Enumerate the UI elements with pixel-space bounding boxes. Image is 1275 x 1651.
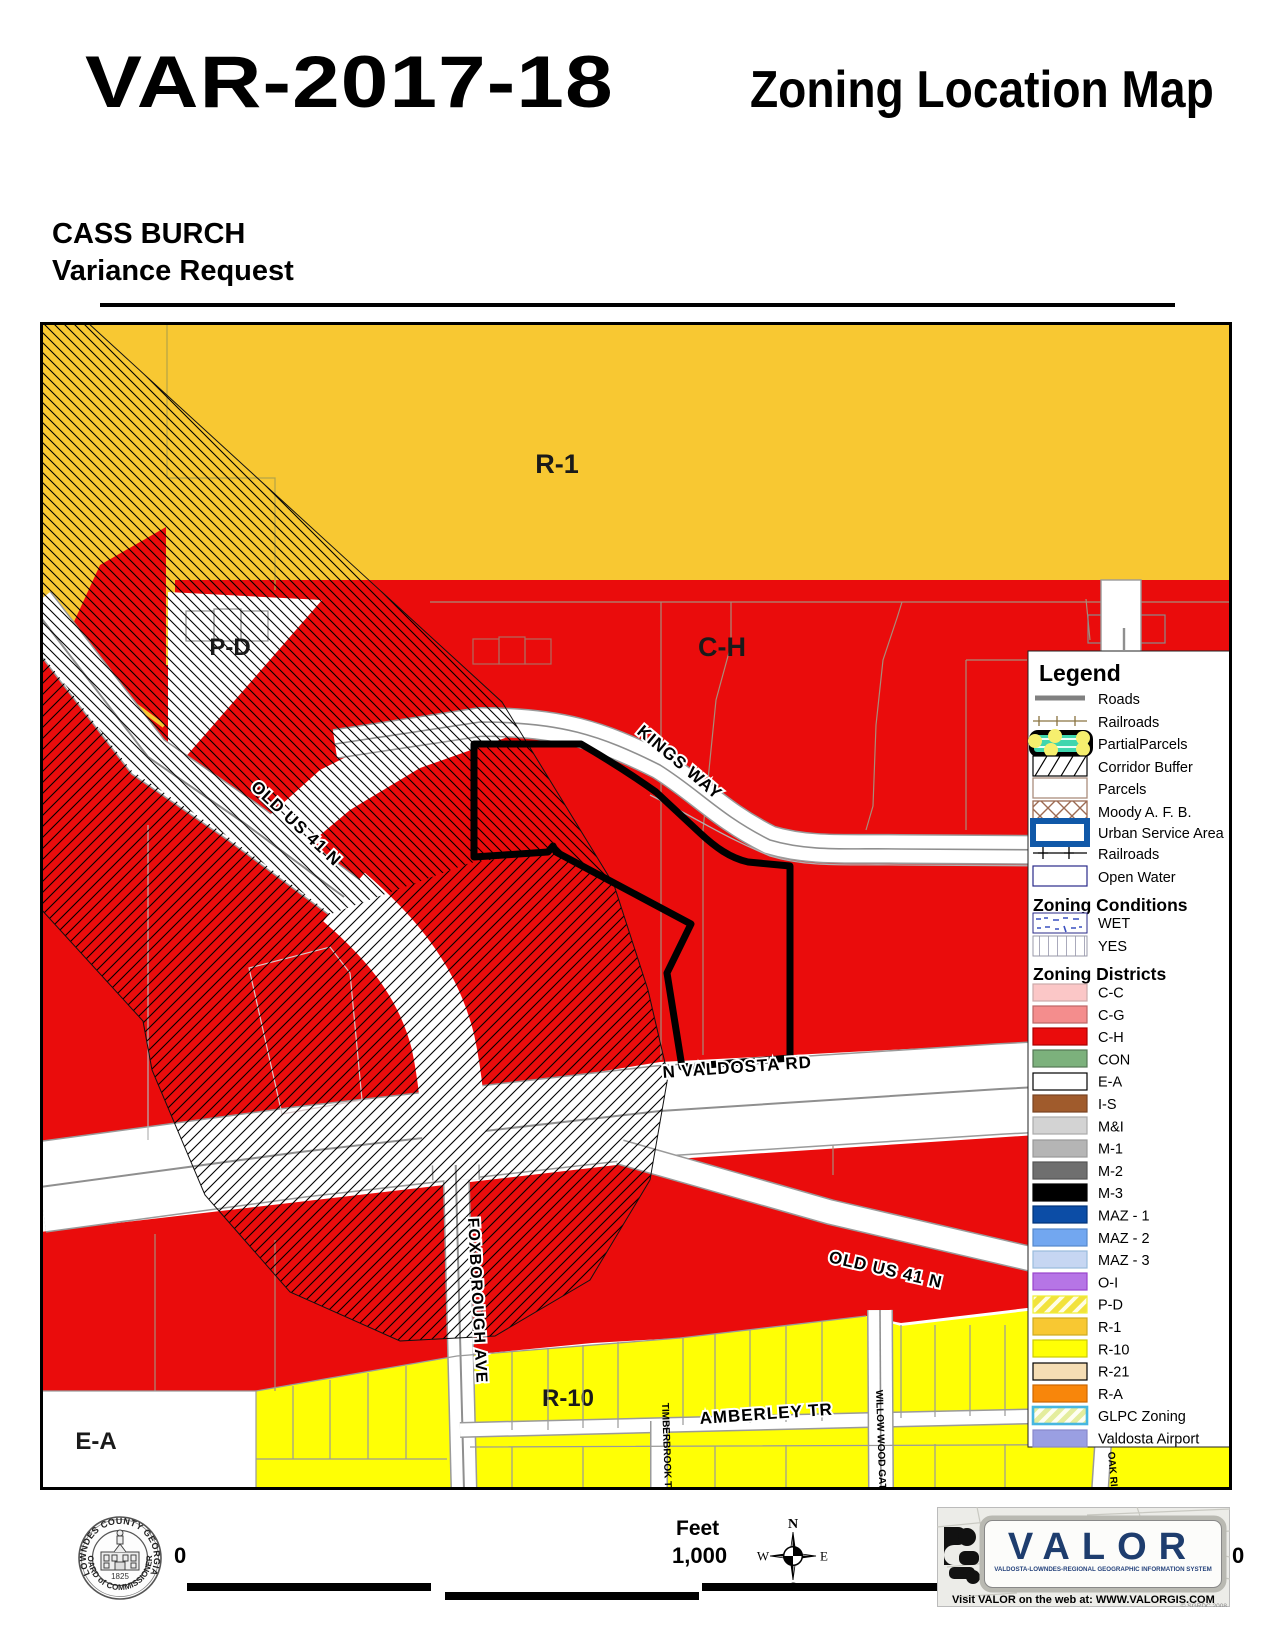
svg-text:S: S bbox=[789, 1579, 796, 1594]
svg-text:N: N bbox=[788, 1517, 798, 1532]
svg-text:P-D: P-D bbox=[209, 634, 250, 661]
svg-text:M-1: M-1 bbox=[1098, 1142, 1123, 1158]
svg-text:M-2: M-2 bbox=[1098, 1164, 1123, 1180]
svg-text:Urban Service Area: Urban Service Area bbox=[1098, 826, 1225, 842]
svg-text:MAZ - 2: MAZ - 2 bbox=[1098, 1231, 1150, 1247]
svg-text:MAZ - 3: MAZ - 3 bbox=[1098, 1253, 1150, 1269]
svg-text:CON: CON bbox=[1098, 1052, 1130, 1068]
svg-text:YES: YES bbox=[1098, 939, 1127, 955]
svg-text:1825: 1825 bbox=[111, 1572, 129, 1581]
svg-text:Zoning Conditions: Zoning Conditions bbox=[1033, 895, 1188, 915]
svg-text:Zoning Districts: Zoning Districts bbox=[1033, 964, 1166, 984]
svg-text:GLPC Zoning: GLPC Zoning bbox=[1098, 1409, 1186, 1425]
svg-text:PartialParcels: PartialParcels bbox=[1098, 737, 1187, 753]
svg-text:Parcels: Parcels bbox=[1098, 782, 1146, 798]
svg-text:WET: WET bbox=[1098, 916, 1130, 932]
svg-text:E: E bbox=[820, 1549, 828, 1564]
svg-text:R-A: R-A bbox=[1098, 1387, 1123, 1403]
svg-text:VALOR: VALOR bbox=[1008, 1526, 1198, 1568]
svg-text:R-10: R-10 bbox=[542, 1385, 594, 1412]
svg-text:MAZ - 1: MAZ - 1 bbox=[1098, 1209, 1150, 1225]
svg-text:W: W bbox=[757, 1549, 770, 1564]
svg-text:M&I: M&I bbox=[1098, 1119, 1124, 1135]
svg-text:Valdosta Airport: Valdosta Airport bbox=[1098, 1432, 1199, 1448]
svg-text:VALDOSTA-LOWNDES-REGIONAL GEOG: VALDOSTA-LOWNDES-REGIONAL GEOGRAPHIC INF… bbox=[994, 1566, 1211, 1573]
svg-text:C-G: C-G bbox=[1098, 1008, 1125, 1024]
svg-text:Railroads: Railroads bbox=[1098, 847, 1159, 863]
svg-text:R-10: R-10 bbox=[1098, 1342, 1129, 1358]
svg-text:© SGRDC 2008: © SGRDC 2008 bbox=[1181, 1602, 1228, 1607]
svg-text:P-D: P-D bbox=[1098, 1298, 1123, 1314]
svg-text:Railroads: Railroads bbox=[1098, 715, 1159, 731]
svg-text:Visit VALOR on the web at: WWW: Visit VALOR on the web at: WWW.VALORGIS.… bbox=[952, 1594, 1215, 1606]
svg-text:Corridor Buffer: Corridor Buffer bbox=[1098, 760, 1193, 776]
svg-text:R-1: R-1 bbox=[535, 449, 579, 479]
svg-text:I-S: I-S bbox=[1098, 1097, 1117, 1113]
svg-text:Roads: Roads bbox=[1098, 692, 1140, 708]
svg-text:E-A: E-A bbox=[1098, 1075, 1123, 1091]
svg-text:C-H: C-H bbox=[698, 632, 746, 662]
svg-text:C-H: C-H bbox=[1098, 1030, 1124, 1046]
svg-text:M-3: M-3 bbox=[1098, 1186, 1123, 1202]
svg-text:R-1: R-1 bbox=[1098, 1320, 1121, 1336]
svg-text:Open Water: Open Water bbox=[1098, 870, 1176, 886]
svg-text:E-A: E-A bbox=[75, 1428, 116, 1455]
svg-text:C-C: C-C bbox=[1098, 986, 1124, 1002]
svg-text:O-I: O-I bbox=[1098, 1275, 1118, 1291]
svg-text:Legend: Legend bbox=[1039, 660, 1121, 686]
svg-text:R-21: R-21 bbox=[1098, 1365, 1129, 1381]
svg-text:Moody A. F. B.: Moody A. F. B. bbox=[1098, 805, 1192, 821]
